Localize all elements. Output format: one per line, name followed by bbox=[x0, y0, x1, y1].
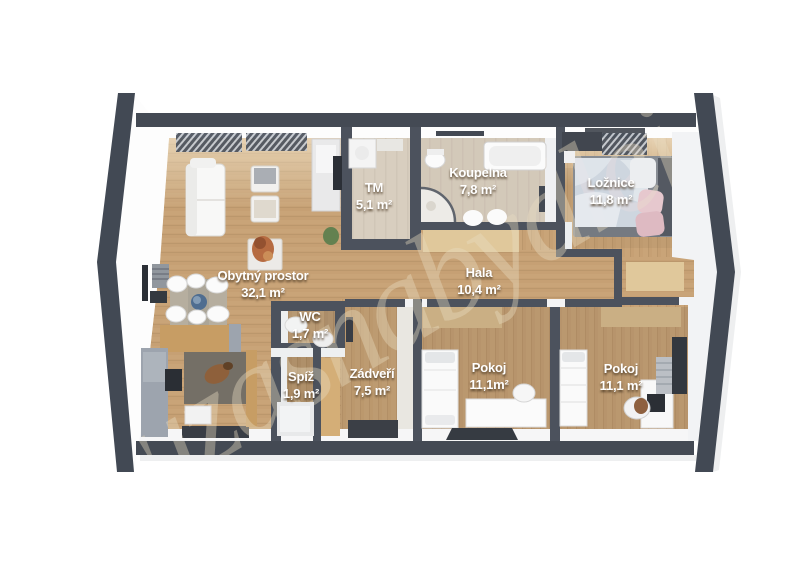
svg-text:Zádveří: Zádveří bbox=[350, 366, 395, 381]
svg-text:1,7 m²: 1,7 m² bbox=[292, 326, 329, 341]
svg-text:32,1 m²: 32,1 m² bbox=[241, 285, 285, 300]
svg-text:Spíž: Spíž bbox=[288, 369, 315, 384]
svg-text:Koupelna: Koupelna bbox=[449, 165, 508, 180]
svg-text:Ložnice: Ložnice bbox=[588, 175, 635, 190]
svg-text:11,8 m²: 11,8 m² bbox=[590, 192, 634, 207]
svg-text:1,9 m²: 1,9 m² bbox=[283, 386, 320, 401]
svg-text:Pokoj: Pokoj bbox=[472, 360, 506, 375]
svg-text:Hala: Hala bbox=[466, 265, 494, 280]
svg-text:10,4 m²: 10,4 m² bbox=[457, 282, 501, 297]
svg-text:11,1m²: 11,1m² bbox=[469, 377, 509, 392]
svg-text:5,1 m²: 5,1 m² bbox=[356, 197, 393, 212]
svg-text:WC: WC bbox=[299, 309, 321, 324]
svg-text:7,5 m²: 7,5 m² bbox=[354, 383, 391, 398]
svg-text:11,1 m²: 11,1 m² bbox=[600, 378, 644, 393]
svg-text:TM: TM bbox=[365, 180, 383, 195]
svg-text:Pokoj: Pokoj bbox=[604, 361, 638, 376]
svg-text:Obytný prostor: Obytný prostor bbox=[217, 268, 308, 283]
svg-text:7,8 m²: 7,8 m² bbox=[460, 182, 497, 197]
